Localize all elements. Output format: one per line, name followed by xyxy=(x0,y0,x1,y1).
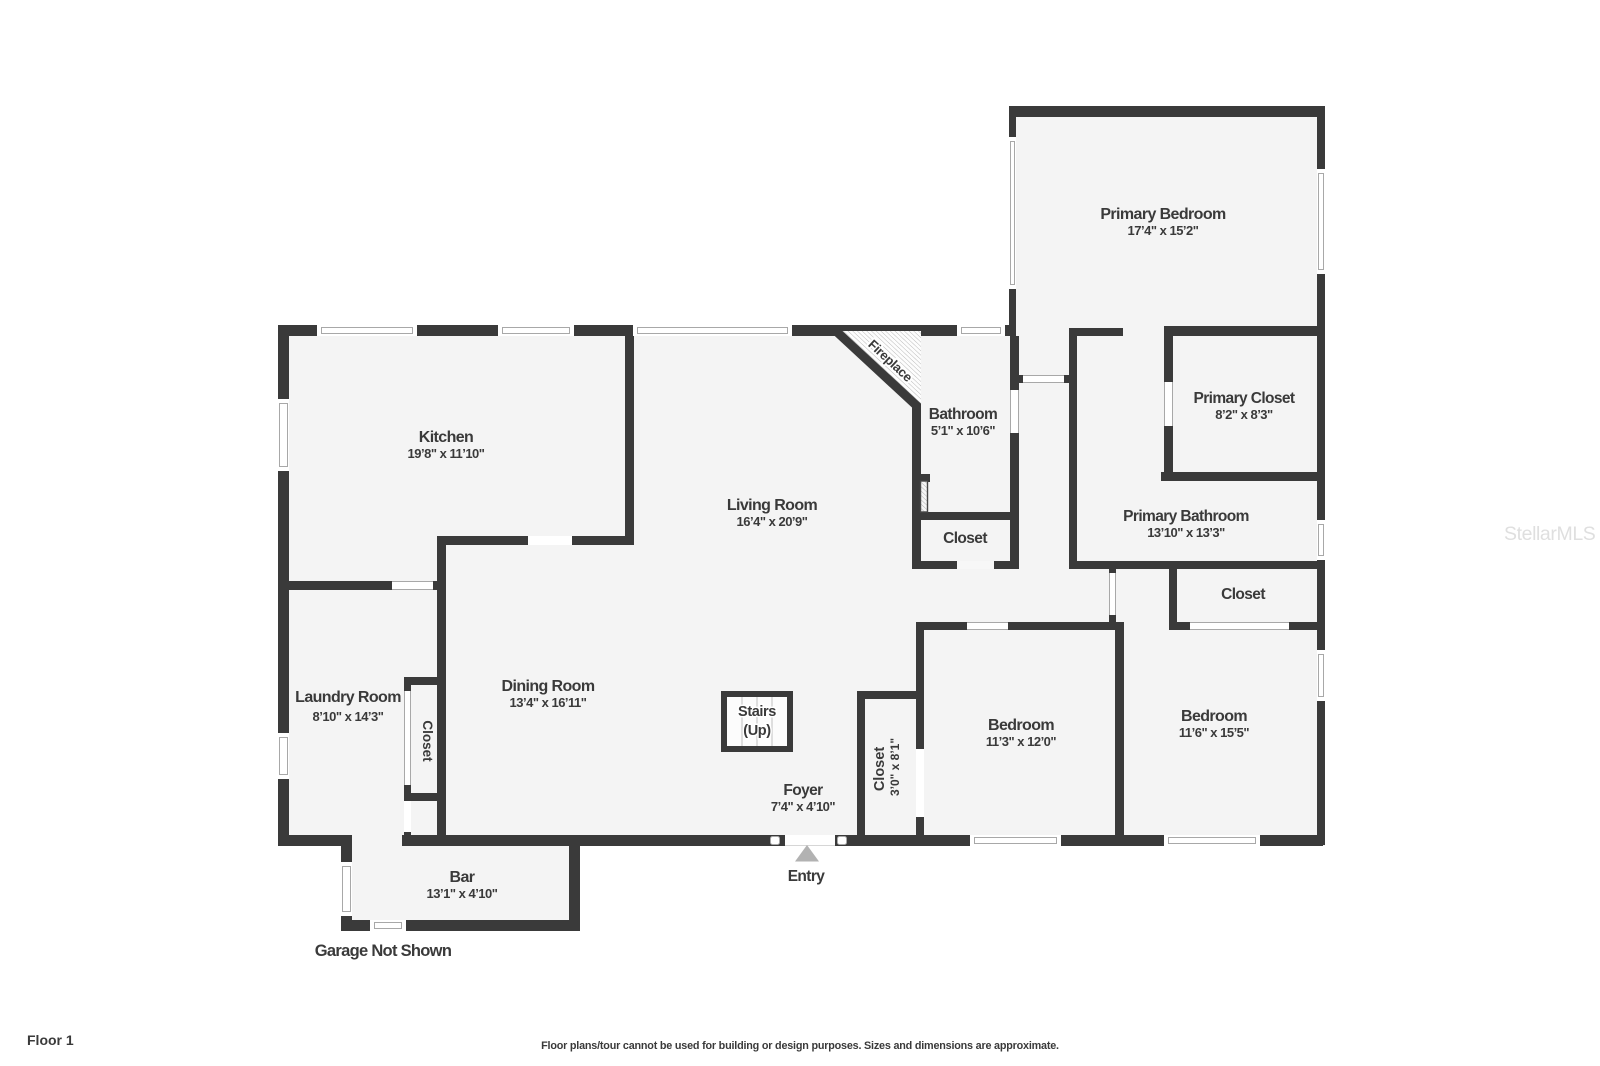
svg-text:13’10" x 13’3": 13’10" x 13’3" xyxy=(1147,525,1225,540)
svg-text:Floor 1: Floor 1 xyxy=(27,1032,74,1048)
svg-text:8’10" x 14’3": 8’10" x 14’3" xyxy=(313,709,384,724)
svg-text:5’1" x 10’6": 5’1" x 10’6" xyxy=(931,423,995,438)
svg-text:13’1" x 4’10": 13’1" x 4’10" xyxy=(427,886,498,901)
svg-text:11’3" x 12’0": 11’3" x 12’0" xyxy=(986,734,1057,749)
svg-text:Entry: Entry xyxy=(788,868,826,885)
svg-text:Bedroom: Bedroom xyxy=(1181,708,1247,725)
svg-text:Living Room: Living Room xyxy=(727,497,818,514)
svg-text:Closet: Closet xyxy=(420,720,435,762)
svg-text:Primary Bedroom: Primary Bedroom xyxy=(1100,206,1226,223)
svg-text:StellarMLS: StellarMLS xyxy=(1504,523,1596,545)
svg-text:Primary Closet: Primary Closet xyxy=(1193,390,1294,407)
svg-text:Garage Not Shown: Garage Not Shown xyxy=(315,942,452,960)
svg-text:Closet: Closet xyxy=(943,530,987,547)
svg-text:Dining Room: Dining Room xyxy=(502,678,595,695)
svg-text:11’6" x 15’5": 11’6" x 15’5" xyxy=(1179,725,1250,740)
svg-text:Bedroom: Bedroom xyxy=(988,717,1054,734)
svg-text:7’4" x 4’10": 7’4" x 4’10" xyxy=(771,799,835,814)
svg-text:Stairs: Stairs xyxy=(738,704,776,720)
svg-text:13’4" x 16’11": 13’4" x 16’11" xyxy=(510,695,587,710)
svg-text:17’4" x 15’2": 17’4" x 15’2" xyxy=(1128,223,1199,238)
svg-text:3’0" x 8’1": 3’0" x 8’1" xyxy=(888,738,902,796)
svg-text:Laundry Room: Laundry Room xyxy=(295,689,401,706)
svg-text:(Up): (Up) xyxy=(743,723,771,739)
svg-text:Bar: Bar xyxy=(450,869,475,886)
svg-text:Floor plans/tour cannot be use: Floor plans/tour cannot be used for buil… xyxy=(541,1040,1059,1052)
svg-text:19’8" x 11’10": 19’8" x 11’10" xyxy=(408,446,485,461)
svg-text:Bathroom: Bathroom xyxy=(929,406,997,423)
svg-text:Closet: Closet xyxy=(872,747,888,791)
svg-text:8’2" x 8’3": 8’2" x 8’3" xyxy=(1215,407,1273,422)
svg-text:Closet: Closet xyxy=(1221,586,1265,603)
svg-text:16’4" x 20’9": 16’4" x 20’9" xyxy=(737,514,808,529)
svg-text:Primary Bathroom: Primary Bathroom xyxy=(1123,508,1249,525)
svg-text:Foyer: Foyer xyxy=(783,782,823,799)
svg-text:Kitchen: Kitchen xyxy=(419,429,473,446)
